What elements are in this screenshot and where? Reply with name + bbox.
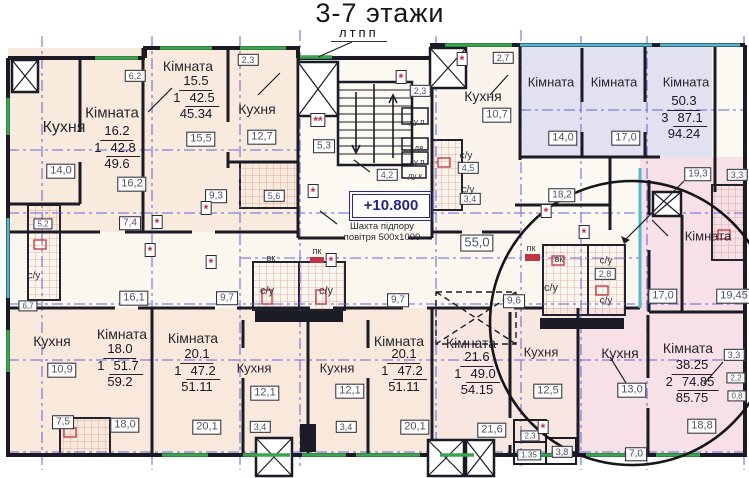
apartment-bottom-left-stats: 18.0151.759.2 (97, 342, 143, 390)
area-label: 19,45 (716, 289, 749, 304)
room-count: 2 (666, 374, 673, 389)
area-label: 10,7 (482, 108, 511, 123)
area-label: 4,2 (377, 169, 398, 181)
pk-label: пк (313, 246, 322, 256)
asterisk-marker: * (396, 70, 407, 84)
area-label: 6,7 (18, 300, 37, 311)
air-shaft-note-line1: Шахта підпору (328, 221, 436, 232)
duct-label: дв (415, 144, 424, 153)
area-label: 2,3 (238, 54, 259, 66)
area-label: 55,0 (460, 235, 493, 252)
vk-label: вк (267, 253, 276, 263)
living-area: 74.85 (678, 375, 719, 392)
apartment-top-2-stats: 15.5142.545.34 (173, 74, 219, 122)
area-label: 14,0 (548, 131, 577, 146)
apartment-bottom-right-stats: 38.25274.8585.75 (666, 358, 719, 406)
kitchen-label: Кухня (43, 119, 86, 137)
area-label: 1.35 (517, 449, 541, 460)
floor-plan: 3-7 этажи лтпп КухняКімнатаКімнатаКухняК… (0, 0, 749, 478)
duct-label: ду к (408, 172, 422, 181)
asterisk-marker: * (541, 204, 552, 218)
area-label: 9,7 (387, 293, 409, 307)
room-label: Кімната (663, 340, 713, 356)
room-area: 20.1 (387, 347, 420, 364)
living-area: 47.2 (186, 364, 219, 381)
bathroom-label: с/у (544, 282, 558, 294)
total-area: 51.11 (174, 380, 220, 395)
kitchen-label: Кухня (237, 361, 272, 376)
area-label: 3,4 (336, 421, 357, 433)
living-area: 42.5 (185, 91, 218, 108)
room-area: 21.6 (460, 350, 493, 367)
total-area: 85.75 (666, 391, 719, 406)
total-area: 49.6 (94, 157, 140, 172)
total-area: 45.34 (173, 107, 219, 122)
asterisk-marker: * (308, 184, 319, 198)
area-label: 7,4 (119, 216, 141, 230)
bathroom-label: с/у (462, 185, 475, 196)
apartment-bottom-4-stats: 21.6149.054.15 (454, 350, 500, 398)
area-label: 9,7 (216, 291, 238, 305)
asterisk-marker: * (326, 253, 337, 267)
area-label: 4,5 (458, 162, 479, 174)
kitchen-label: Кухня (524, 345, 559, 360)
room-count: 1 (94, 140, 101, 155)
area-label: 21,6 (477, 423, 506, 438)
area-label: 5,2 (33, 218, 52, 229)
area-label: 15,5 (186, 132, 215, 147)
area-label: 3,4 (250, 421, 271, 433)
area-label: 5,6 (264, 190, 285, 202)
room-area: 16.2 (100, 124, 133, 141)
apartment-bottom-3-stats: 20.1147.251.11 (381, 347, 427, 395)
total-area: 51.11 (381, 380, 427, 395)
area-label: 9,6 (503, 294, 525, 308)
asterisk-marker: * (579, 225, 590, 239)
room-label: Кімната (528, 75, 575, 90)
kitchen-label: Кухня (601, 345, 638, 361)
living-area: 51.7 (109, 359, 142, 376)
apartment-bottom-2-stats: 20.1147.251.11 (174, 347, 220, 395)
area-label: 12,7 (247, 130, 276, 145)
area-label: 19,3 (684, 167, 711, 181)
area-label: 18,0 (110, 418, 139, 433)
bathroom-label: с/у (600, 256, 613, 267)
living-area: 49.0 (466, 367, 499, 384)
room-label: Кімната (168, 330, 218, 346)
area-label: 13,0 (617, 383, 646, 398)
asterisk-marker: * (206, 255, 217, 269)
duct-label: ду п (409, 158, 424, 167)
asterisk-marker: ** (310, 113, 325, 127)
total-area: 94.24 (661, 127, 707, 142)
area-label: 16,2 (117, 177, 146, 192)
bathroom-label: с/у (460, 151, 473, 162)
room-count: 1 (174, 363, 181, 378)
room-label: Кімната (85, 105, 139, 122)
room-label: Кімната (163, 58, 213, 74)
living-area: 42.8 (106, 141, 139, 158)
room-area: 50.3 (667, 94, 700, 111)
area-label: 18,2 (548, 188, 575, 202)
room-area: 20.1 (180, 347, 213, 364)
area-label: 17,0 (648, 289, 677, 304)
area-label: 17,0 (611, 131, 640, 146)
room-label: Кімната (685, 229, 732, 244)
area-label: 3,3 (727, 169, 748, 181)
asterisk-marker: * (201, 201, 212, 215)
room-count: 1 (381, 363, 388, 378)
area-label: 2,8 (595, 268, 616, 280)
room-count: 3 (661, 110, 668, 125)
kitchen-label: Кухня (238, 101, 275, 117)
bathroom-label: с/у (319, 285, 333, 297)
room-area: 38.25 (672, 358, 713, 375)
area-label: 12,1 (250, 386, 279, 401)
area-label: 0,8 (727, 390, 746, 401)
area-label: 20,1 (400, 420, 429, 435)
kitchen-label: Кухня (33, 333, 70, 349)
area-label: 12,1 (335, 384, 364, 399)
area-label: 12,5 (533, 384, 562, 399)
room-label: Кімната (591, 75, 638, 90)
air-shaft-note: Шахта підпору повітря 500х1000 (328, 221, 436, 243)
room-label: Кімната (663, 75, 710, 90)
elevation-badge: +10.800 (352, 194, 430, 218)
area-label: 3,3 (724, 349, 745, 361)
area-label: 6,2 (125, 70, 146, 82)
area-label: 10,9 (47, 363, 76, 378)
room-area: 15.5 (179, 74, 212, 91)
asterisk-marker: * (152, 215, 163, 229)
asterisk-marker: * (145, 243, 156, 257)
area-label: 5,3 (313, 139, 335, 153)
apartment-top-left-stats: 16.2142.849.6 (94, 124, 140, 172)
area-label: 7,5 (52, 415, 74, 429)
kitchen-label: Кухня (464, 88, 501, 104)
room-count: 1 (173, 90, 180, 105)
total-area: 54.15 (454, 383, 500, 398)
area-label: 20,1 (192, 420, 221, 435)
room-label: Кімната (97, 326, 147, 342)
room-count: 1 (97, 358, 104, 373)
area-label: 2,2 (726, 372, 745, 383)
bathroom-label: с/у (260, 285, 274, 297)
area-label: 18,8 (687, 419, 716, 434)
total-area: 59.2 (97, 375, 143, 390)
area-label: 7,0 (625, 447, 647, 461)
room-count: 1 (454, 366, 461, 381)
pk-label: пк (527, 243, 536, 253)
asterisk-marker: * (538, 420, 549, 434)
area-label: 16,1 (119, 291, 148, 306)
area-label: 2,7 (493, 52, 514, 64)
vk-label: вк (555, 254, 564, 264)
area-label: 14,0 (46, 164, 75, 179)
living-area: 87.1 (673, 111, 706, 128)
bathroom-label: с/у (28, 271, 41, 282)
air-shaft-note-line2: повітря 500х1000 (328, 232, 436, 243)
kitchen-label: Кухня (320, 361, 355, 376)
room-area: 18.0 (103, 342, 136, 359)
bathroom-label: с/у (600, 296, 613, 307)
area-label: 3,8 (552, 446, 573, 458)
living-area: 47.2 (393, 364, 426, 381)
area-label: 2,3 (410, 85, 431, 97)
duct-label: ду п (409, 118, 424, 127)
asterisk-marker: * (457, 52, 468, 66)
apartment-top-right-stats: 50.3387.194.24 (661, 94, 707, 142)
